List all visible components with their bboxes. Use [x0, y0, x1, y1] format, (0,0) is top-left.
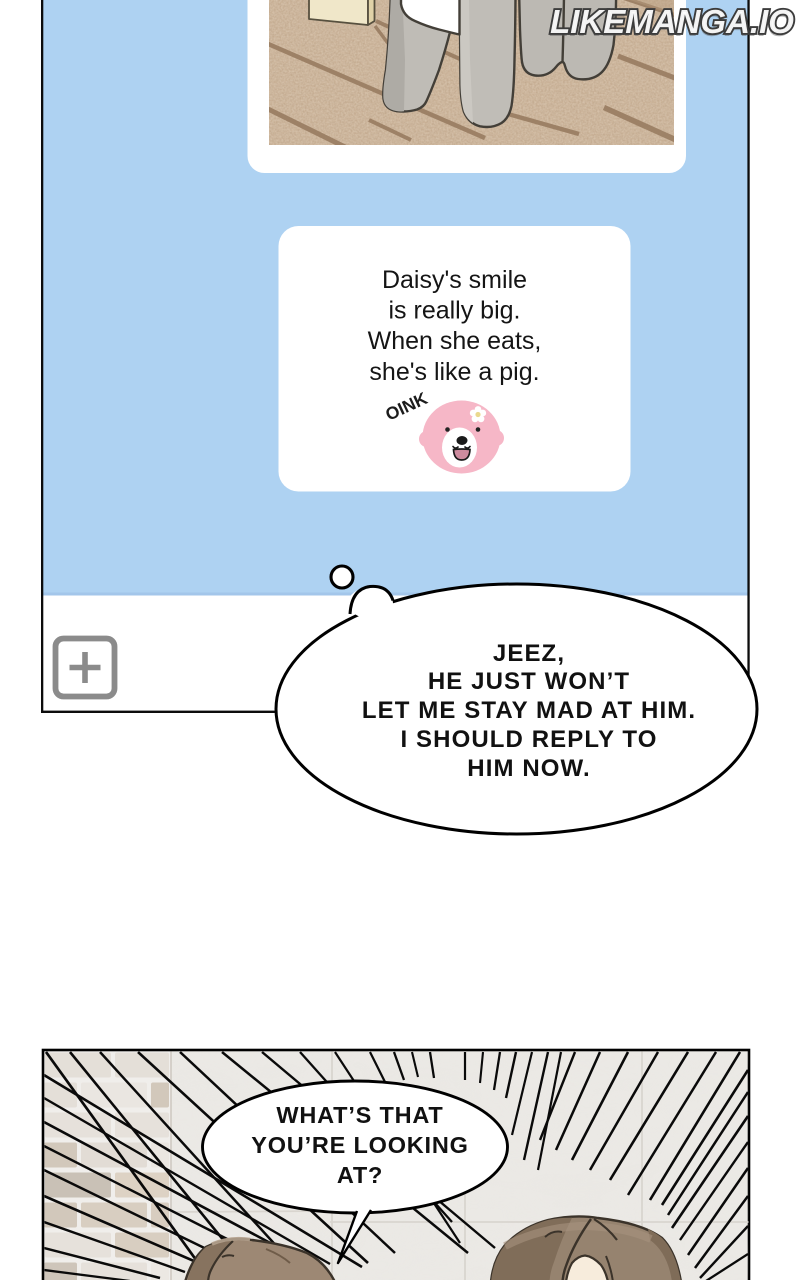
svg-text:JEEZ,: JEEZ,	[493, 640, 565, 667]
svg-text:WHAT’S THAT: WHAT’S THAT	[276, 1102, 443, 1128]
svg-text:is really big.: is really big.	[389, 297, 521, 325]
svg-text:YOU’RE LOOKING: YOU’RE LOOKING	[251, 1132, 469, 1158]
svg-text:Daisy's smile: Daisy's smile	[382, 266, 527, 294]
svg-text:she's like a pig.: she's like a pig.	[369, 358, 539, 386]
svg-text:I SHOULD REPLY TO: I SHOULD REPLY TO	[401, 726, 658, 753]
svg-text:LET ME STAY MAD AT HIM.: LET ME STAY MAD AT HIM.	[362, 697, 696, 724]
svg-text:LIKEMANGA.IO: LIKEMANGA.IO	[550, 3, 794, 40]
svg-text:When she eats,: When she eats,	[368, 327, 542, 355]
svg-text:HIM NOW.: HIM NOW.	[467, 755, 590, 782]
svg-text:HE JUST WON’T: HE JUST WON’T	[428, 668, 630, 695]
svg-text:AT?: AT?	[337, 1162, 383, 1188]
